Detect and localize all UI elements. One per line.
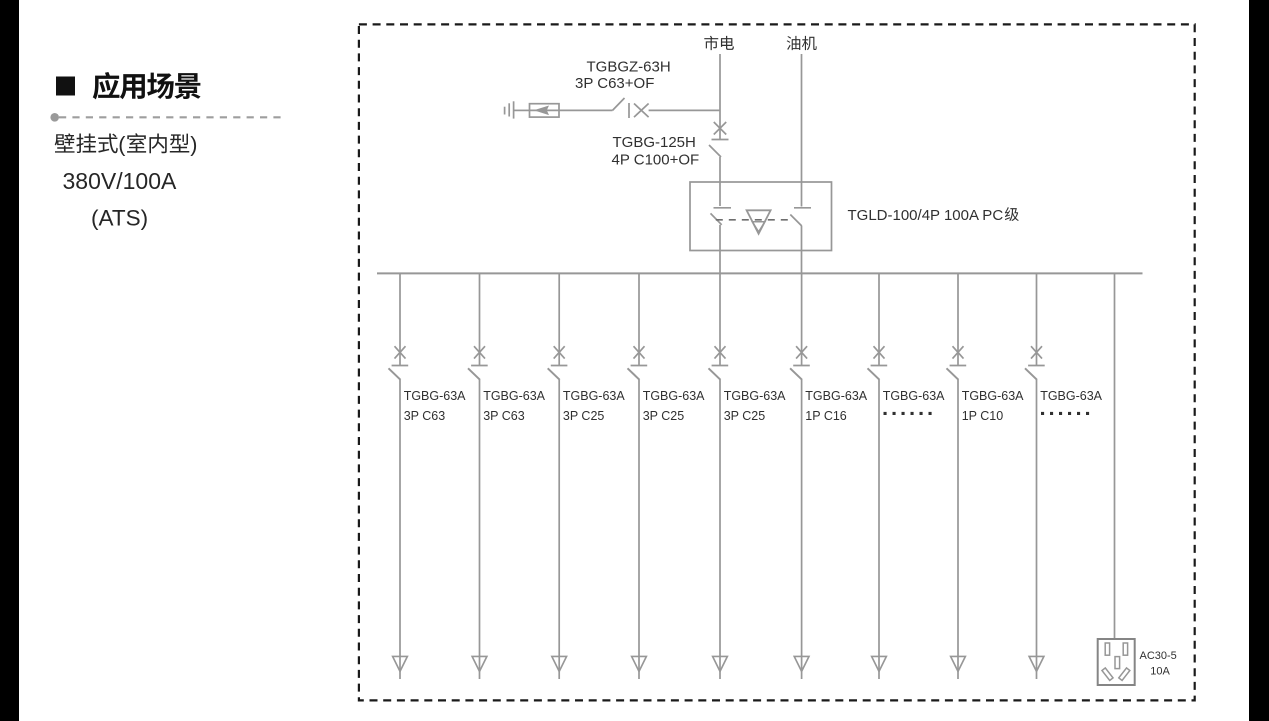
- svg-text:TGBG-63A: TGBG-63A: [483, 389, 545, 403]
- svg-text:3P C25: 3P C25: [563, 409, 605, 423]
- svg-text:4P C100+OF: 4P C100+OF: [612, 152, 700, 169]
- svg-text:TGBG-63A: TGBG-63A: [643, 389, 705, 403]
- svg-text:1P C16: 1P C16: [805, 409, 847, 423]
- svg-text:(ATS): (ATS): [91, 206, 148, 231]
- svg-text:): ): [190, 133, 197, 157]
- svg-text:TGBG-63A: TGBG-63A: [962, 389, 1024, 403]
- svg-text:3P C25: 3P C25: [724, 409, 766, 423]
- svg-text:3P C25: 3P C25: [643, 409, 685, 423]
- svg-text:AC30-5: AC30-5: [1140, 650, 1177, 662]
- svg-text:TGBG-63A: TGBG-63A: [1040, 389, 1102, 403]
- svg-text:TGBG-125H: TGBG-125H: [613, 134, 696, 151]
- svg-text:(: (: [118, 133, 126, 157]
- svg-text:TGBG-63A: TGBG-63A: [805, 389, 867, 403]
- svg-text:1P C10: 1P C10: [962, 409, 1004, 423]
- svg-text:3P C63: 3P C63: [483, 409, 525, 423]
- svg-text:3P C63+OF: 3P C63+OF: [575, 75, 654, 92]
- svg-text:TGBG-63A: TGBG-63A: [563, 389, 625, 403]
- svg-text:3P C63: 3P C63: [404, 409, 446, 423]
- svg-text:380V/100A: 380V/100A: [63, 168, 177, 194]
- svg-text:TGBGZ-63H: TGBGZ-63H: [587, 59, 671, 76]
- svg-text:TGLD-100/4P 100A PC: TGLD-100/4P 100A PC: [848, 207, 1004, 224]
- svg-text:TGBG-63A: TGBG-63A: [724, 389, 786, 403]
- svg-text:10A: 10A: [1150, 666, 1170, 678]
- svg-text:TGBG-63A: TGBG-63A: [883, 389, 945, 403]
- svg-text:TGBG-63A: TGBG-63A: [404, 389, 466, 403]
